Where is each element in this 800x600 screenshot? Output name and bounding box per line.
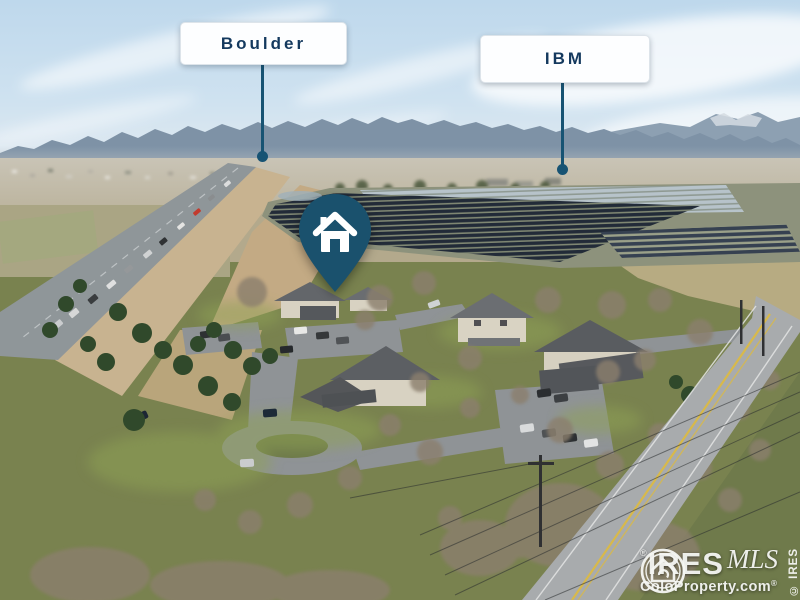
callout-boulder: Boulder [180,22,347,65]
callout-ibm-line [561,81,564,165]
callout-boulder-dot [257,151,268,162]
callout-ibm-label: IBM [545,49,585,69]
callout-ibm-dot [557,164,568,175]
ires-house-logo-icon [640,548,686,594]
callout-boulder-line [261,63,264,153]
watermark-mls-script: MLS [727,546,778,573]
map-pin-icon [296,192,374,294]
watermark: ® IRES MLS ColoProperty.com ® [640,548,796,595]
real-estate-aerial-photo: Boulder IBM ® IRES MLS ColoProperty.com … [0,0,800,600]
aerial-photo-scene [0,0,800,600]
registered-mark: ® [771,580,777,588]
callout-boulder-label: Boulder [221,34,306,54]
callout-ibm: IBM [480,35,650,83]
